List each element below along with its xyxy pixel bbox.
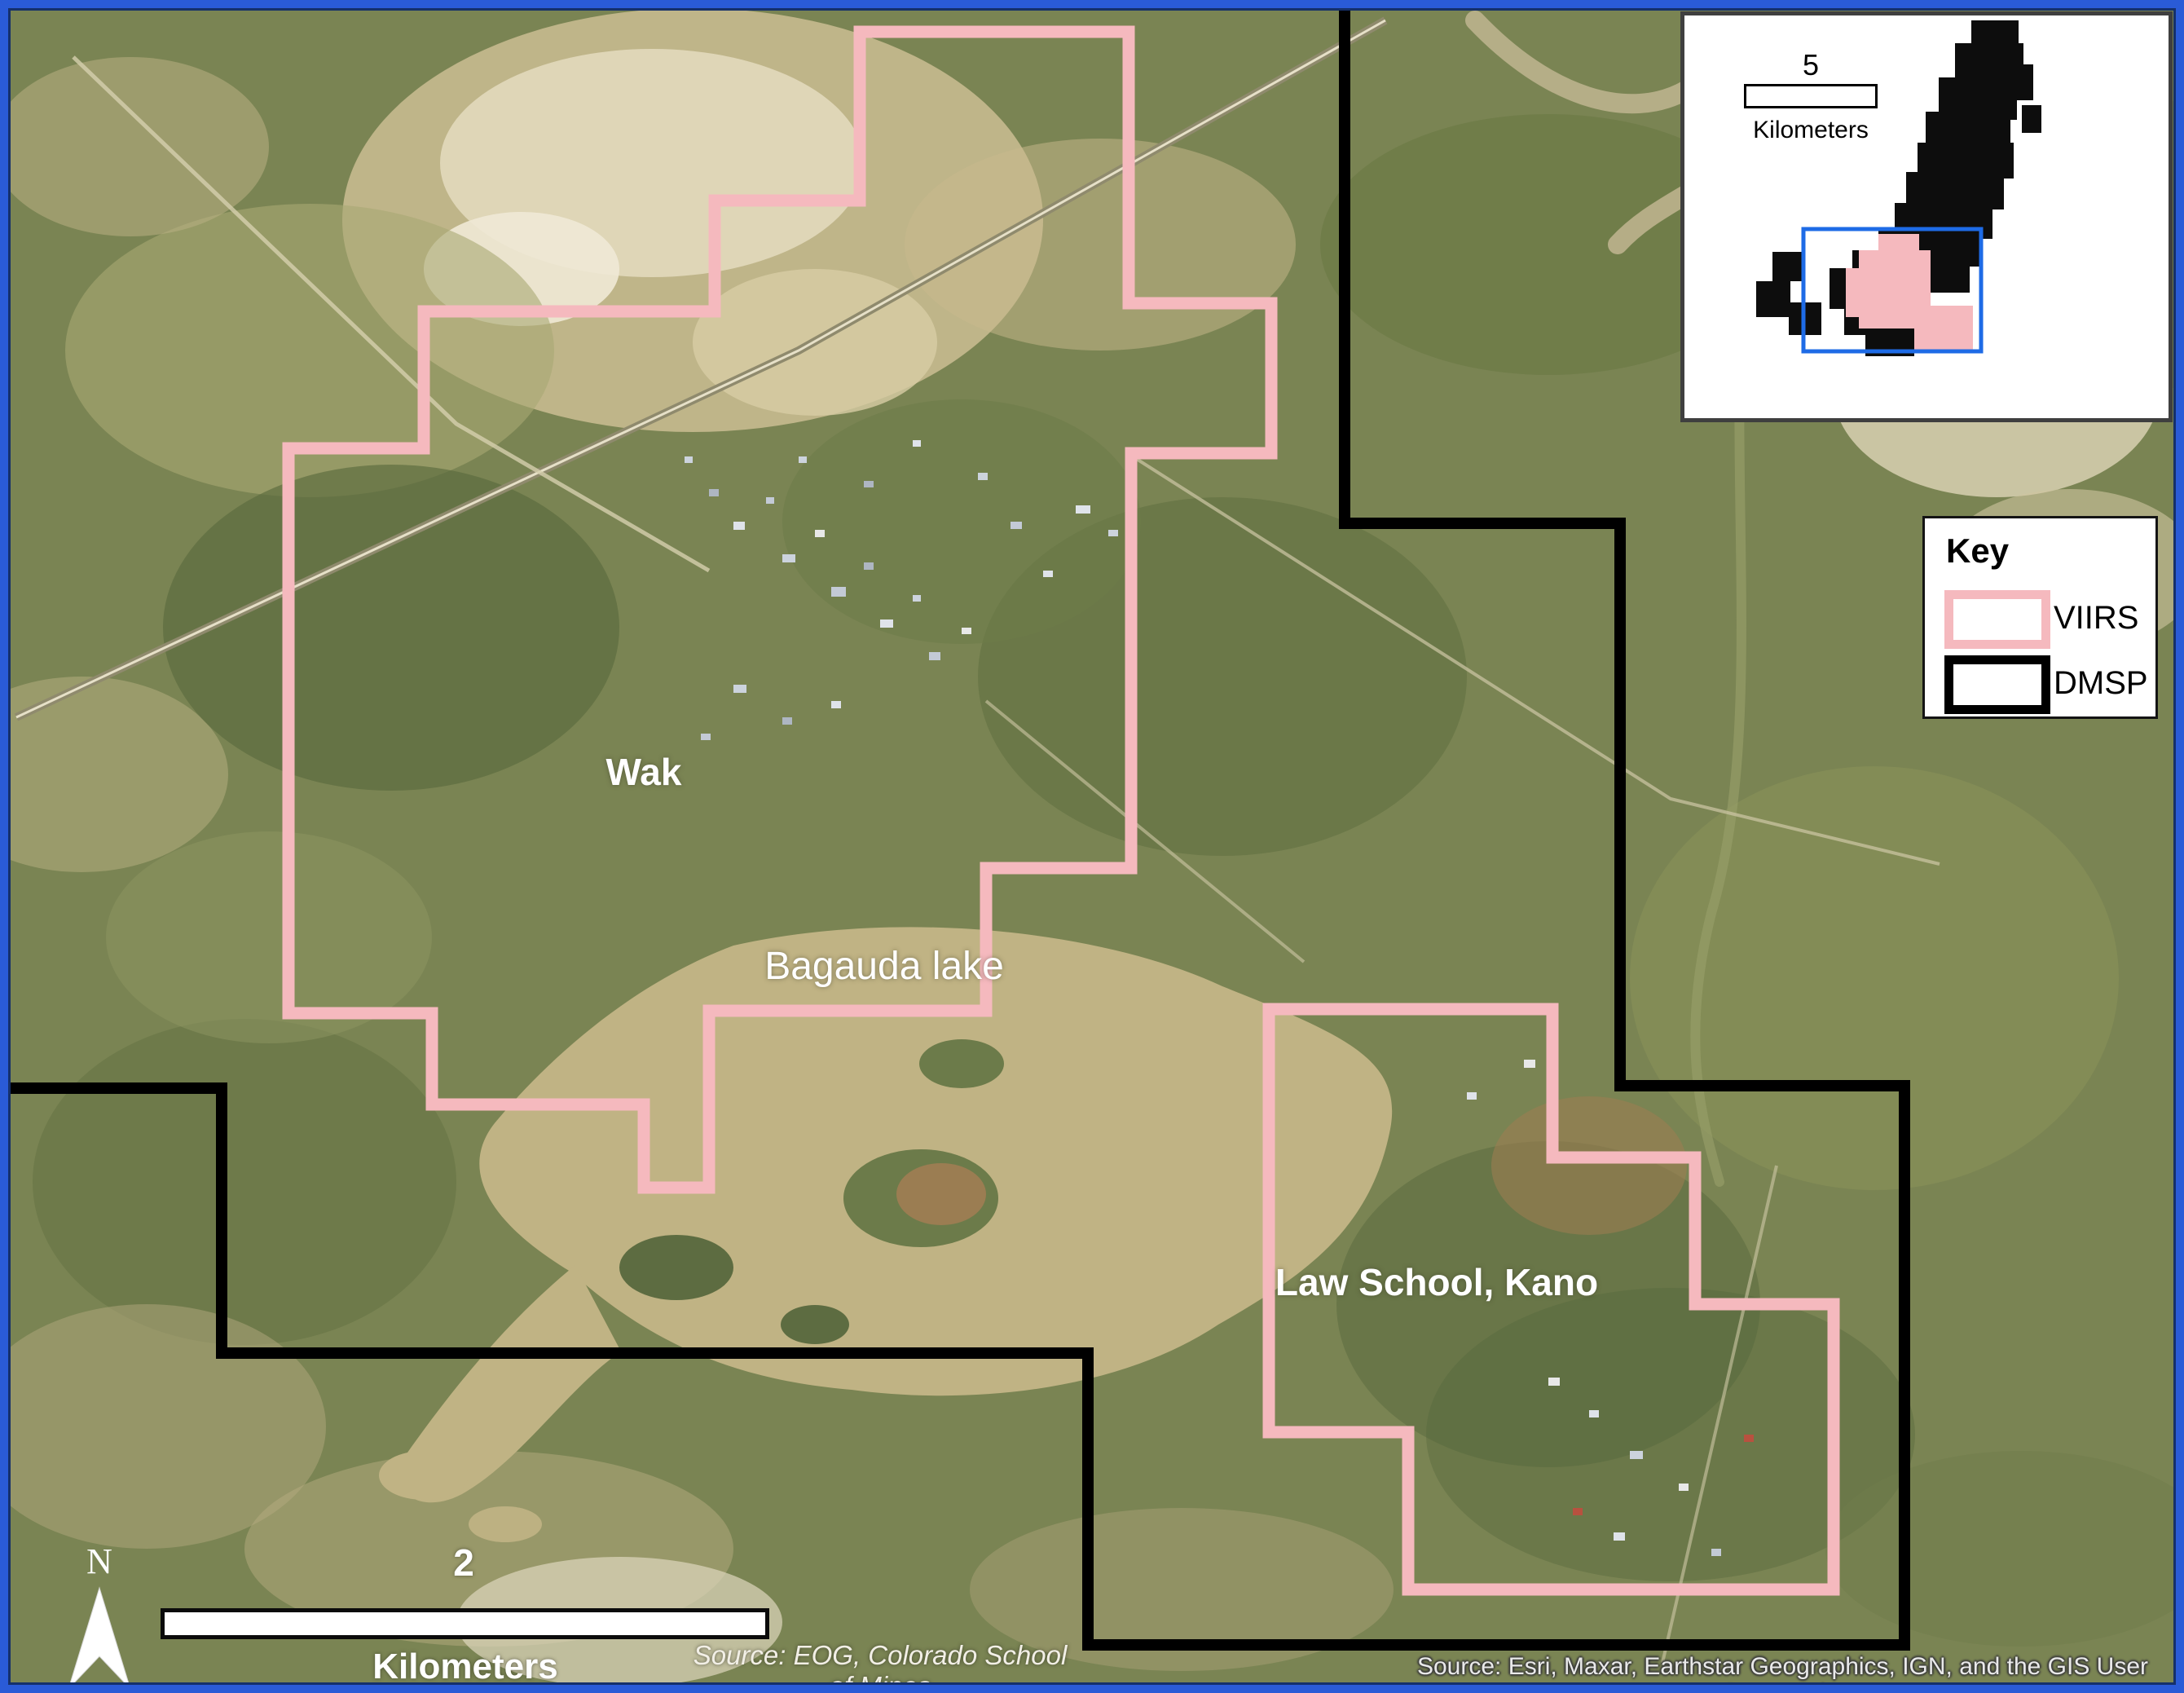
north-arrow: N <box>59 1541 140 1693</box>
viirs-swatch <box>1944 590 2050 649</box>
source-credit-basemap: Source: Esri, Maxar, Earthstar Geographi… <box>1385 1653 2180 1693</box>
source-credit-nightlights: Source: EOG, Colorado School of Mines <box>689 1640 1072 1693</box>
inset-scalebar-unit: Kilometers <box>1729 117 1892 144</box>
dmsp-key-label: DMSP <box>2054 665 2148 702</box>
scalebar <box>161 1608 769 1639</box>
inset-scalebar-value: 5 <box>1741 48 1880 82</box>
dmsp-swatch <box>1944 655 2050 714</box>
north-arrow-label: N <box>59 1541 140 1582</box>
inset-scalebar <box>1744 84 1878 108</box>
key-title: Key <box>1946 531 2009 571</box>
label-law-school: Law School, Kano <box>1274 1260 1600 1304</box>
scalebar-unit: Kilometers <box>302 1647 628 1687</box>
inset-locator-map: 5 Kilometers <box>1680 11 2173 422</box>
scalebar-value: 2 <box>435 1541 492 1585</box>
viirs-key-label: VIIRS <box>2054 600 2138 637</box>
map-figure: Wak Bagauda lake Law School, Kano <box>0 0 2184 1693</box>
label-wak: Wak <box>562 750 725 794</box>
key-box: Key VIIRS DMSP <box>1922 516 2158 719</box>
label-bagauda-lake: Bagauda lake <box>721 944 1047 989</box>
